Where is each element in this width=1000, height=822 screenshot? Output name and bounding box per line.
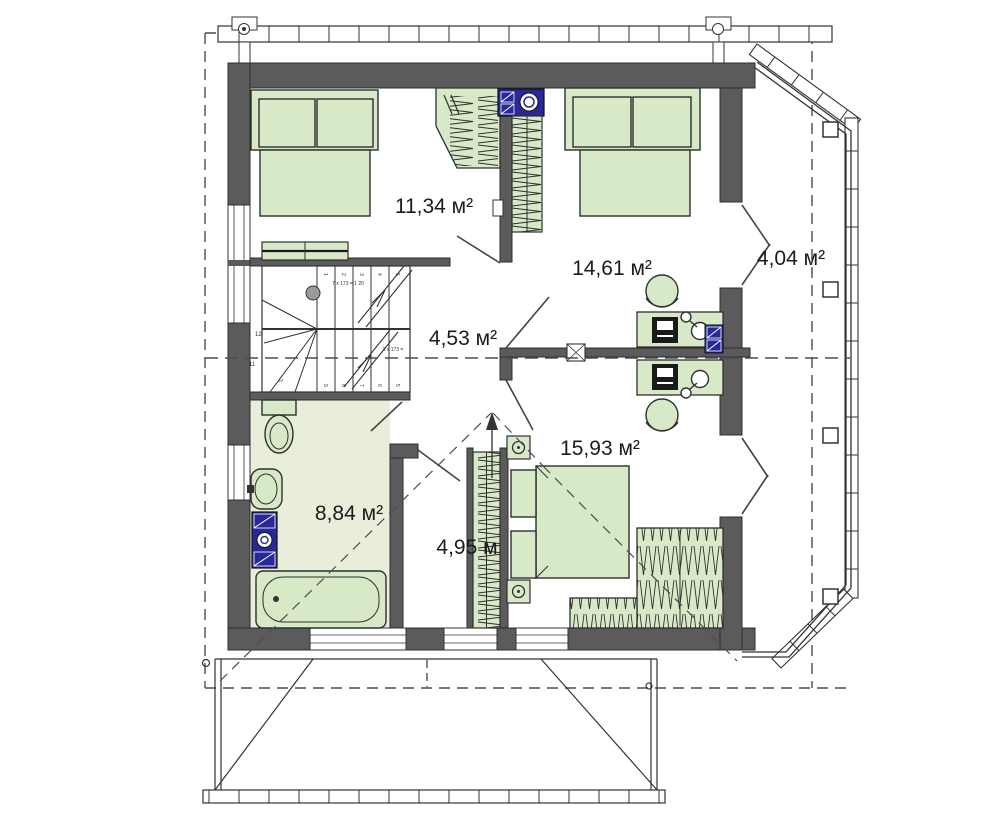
balcony-door-2a xyxy=(742,438,768,477)
outer-wall-left-a xyxy=(228,63,250,205)
tread-number: 6 xyxy=(376,384,382,387)
pillow-2 xyxy=(511,531,536,578)
window-bottom-1 xyxy=(310,628,406,650)
balcony-railing xyxy=(742,62,851,657)
bathtub-drain xyxy=(273,596,279,602)
floor-plan-page: 11,34 м² 14,61 м² 4,04 м² 4,53 м² 15,93 … xyxy=(0,0,1000,822)
room-label-room2: 14,61 м² xyxy=(572,257,652,280)
sink xyxy=(247,469,282,509)
balcony-posts xyxy=(823,122,838,604)
window-left-upper xyxy=(228,205,250,323)
outer-wall-right-a xyxy=(720,88,742,202)
room-label-room1: 11,34 м² xyxy=(395,195,473,218)
window-bottom-3 xyxy=(516,628,568,650)
outer-wall-left-b xyxy=(228,323,250,445)
corner-wardrobe-room1 xyxy=(436,88,500,168)
wall-niche xyxy=(493,200,503,216)
tread-number: 7 xyxy=(358,384,364,387)
sink-tap xyxy=(247,485,254,493)
bathroom-top-wall xyxy=(250,392,410,400)
corridor-door-post xyxy=(390,444,418,458)
balcony-door-2b xyxy=(742,475,768,514)
roof-hip-line-left xyxy=(215,659,313,790)
room-label-balcony: 4,04 м² xyxy=(757,247,825,270)
stair-newel xyxy=(306,286,320,300)
wardrobe-room2 xyxy=(512,116,542,232)
tread-number: 3 xyxy=(358,273,364,276)
sofa-bed-room1 xyxy=(251,90,378,216)
nightstand-2 xyxy=(507,580,530,603)
floor-plan-canvas: 11,34 м² 14,61 м² 4,04 м² 4,53 м² 15,93 … xyxy=(0,0,1000,822)
room-label-bedroom: 15,93 м² xyxy=(560,437,640,460)
chimney-top xyxy=(498,89,544,116)
tread-number: 4 xyxy=(376,273,382,276)
sofa-bed-room2 xyxy=(565,88,700,216)
door-room2 xyxy=(506,297,549,348)
tread-number: 2 xyxy=(340,273,346,276)
window-bottom-2 xyxy=(444,628,497,650)
stove-heater xyxy=(252,512,277,568)
partition-hall-stub xyxy=(500,357,512,380)
outer-wall-top xyxy=(228,63,755,88)
tread-number: 9 xyxy=(322,384,328,387)
pillow-1 xyxy=(511,470,536,517)
desk-2 xyxy=(637,360,723,395)
bathroom-right-wall xyxy=(390,458,403,628)
bathtub xyxy=(256,571,386,628)
toilet xyxy=(262,400,296,453)
door-corridor xyxy=(418,450,460,481)
winder-number: 11 xyxy=(249,362,256,368)
door-bedroom xyxy=(506,380,533,430)
stair-note-lower: 3 x 173 = xyxy=(383,347,404,353)
double-bed xyxy=(511,466,629,578)
tread-number: 8 xyxy=(340,384,346,387)
balcony-door-1a xyxy=(742,205,770,246)
roof-hip-line-right xyxy=(541,659,657,790)
tread-number: 5 xyxy=(394,273,400,276)
room-label-hall: 4,53 м² xyxy=(429,327,497,350)
balcony-eaves xyxy=(742,44,861,668)
stool-2 xyxy=(646,399,678,431)
stair-note-upper: 7 x 173 = 1 20 xyxy=(332,281,364,287)
room-label-bathroom: 8,84 м² xyxy=(315,502,383,525)
lower-roof-plane xyxy=(203,659,666,803)
top-gutter xyxy=(218,17,832,63)
window-left-lower xyxy=(228,445,250,500)
tread-number: 5 xyxy=(394,384,400,387)
room-label-corridor: 4,95 м xyxy=(436,536,497,559)
door-room1 xyxy=(457,236,500,263)
shelf xyxy=(262,242,348,260)
tread-number: 1 xyxy=(322,273,328,276)
chimney-desks xyxy=(705,325,723,353)
drain-mark-left xyxy=(203,660,210,667)
slope-arrow-head xyxy=(486,412,498,430)
winder-number: 12 xyxy=(255,332,262,338)
